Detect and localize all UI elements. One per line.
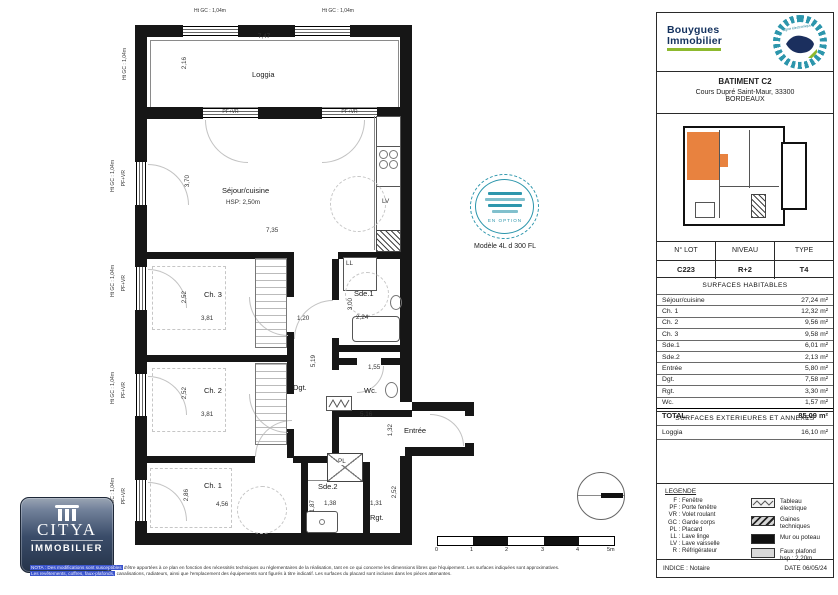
wall: [135, 25, 147, 115]
legend-swatch-row: Mur ou poteau: [751, 534, 829, 544]
furniture: [237, 486, 287, 534]
option-stamp: EN OPTION: [470, 174, 540, 240]
stamp-text: EN OPTION: [470, 218, 540, 223]
room-label-sejour: Séjour/cuisine: [222, 186, 269, 195]
row-label: Sde.2: [662, 354, 680, 361]
partition: [332, 338, 339, 370]
partition: [332, 259, 339, 300]
partition: [339, 345, 412, 352]
table-row: Dgt.7,58 m²: [657, 374, 833, 385]
door-arc: [322, 120, 365, 163]
row-value: 9,56 m²: [805, 319, 828, 326]
legend-abbr-row: PL : Placard: [665, 527, 751, 534]
row-value: 12,32 m²: [801, 308, 828, 315]
window-type-label: PF+VR: [121, 488, 127, 504]
row-value: 5,80 m²: [805, 365, 828, 372]
room-label-ch2: Ch. 2: [204, 386, 222, 395]
zigzag-icon: [327, 397, 351, 410]
toilet-sde1: [390, 295, 402, 310]
key-plan-room: [695, 202, 715, 218]
citya-name: CITYA: [37, 521, 97, 538]
scale-tick: 0: [435, 547, 438, 553]
abbr: GC: [665, 520, 677, 527]
wall: [135, 107, 147, 162]
table-row: Sde.16,01 m²: [657, 340, 833, 351]
bed: [150, 468, 232, 528]
abbr-label: Réfrigérateur: [682, 548, 717, 555]
row-label: Ch. 1: [662, 308, 678, 315]
legend-swatch-row: Gaines techniques: [751, 516, 829, 530]
scale-bar: [437, 536, 615, 546]
window: [295, 26, 350, 36]
wall: [135, 416, 147, 480]
key-plan-annex: [781, 142, 807, 210]
stamp-bar: [485, 198, 525, 201]
lot-table: N° LOT NIVEAU TYPE C223 R+2 T4: [657, 241, 833, 277]
window: [136, 162, 146, 205]
label-ll: LL: [346, 260, 353, 267]
scale-segment: [473, 537, 508, 545]
wall: [405, 447, 474, 456]
key-plan-drawing: [683, 126, 785, 226]
room-label-ch1: Ch. 1: [204, 481, 222, 490]
kitchen-appliance: [376, 116, 401, 148]
entry-door-arc: [430, 414, 464, 446]
abbr-label: Lave linge: [682, 534, 709, 541]
window: [136, 480, 146, 521]
dim-entree-width: 5,16: [360, 411, 372, 418]
legend-abbr-row: GC : Garde corps: [665, 520, 751, 527]
room-label-ch3: Ch. 3: [204, 290, 222, 299]
title-block: Bouygues Immobilier signé électroniqueme…: [656, 12, 834, 578]
door-arc: [148, 164, 189, 205]
dining-table: [330, 176, 386, 232]
floor-plan-sheet: Ht GC : 1,04m Ht GC : 1,04m Ht GC : 1,04…: [0, 0, 838, 595]
stamp-bar: [488, 204, 522, 207]
dim-sde1-height: 3,00: [347, 298, 354, 310]
scale-tick: 1: [470, 547, 473, 553]
orientation-compass: [577, 472, 625, 520]
legend-abbr-row: F : Fenêtre: [665, 498, 751, 505]
dim-loggia-width: 7,47: [244, 33, 284, 40]
burner: [379, 160, 388, 169]
surfaces-table: SURFACES HABITABLES Séjour/cuisine27,24 …: [657, 277, 833, 411]
dim-sde1-width: 2,24: [356, 314, 368, 321]
building-address-line2: BORDEAUX: [657, 96, 833, 103]
legend-swatches: Tableau électrique Gaines techniques Mur…: [751, 498, 829, 566]
window-height-label: Ht GC : 1,04m: [170, 8, 250, 14]
exterior-title: SURFACES EXTERIEURES ET ANNEXES: [657, 412, 833, 425]
row-label: Séjour/cuisine: [662, 297, 705, 304]
partition: [363, 462, 370, 533]
label-pl: PL: [338, 458, 346, 465]
signature-stamp: signé électroniquement: [773, 15, 827, 69]
exterior-surfaces: SURFACES EXTERIEURES ET ANNEXES Loggia 1…: [657, 411, 833, 483]
stamp-bar: [488, 192, 522, 195]
abbr-label: Volet roulant: [682, 512, 715, 519]
stamp-bar: [492, 210, 518, 213]
row-label: Loggia: [662, 429, 682, 436]
table-row: Loggia 16,10 m²: [657, 425, 833, 440]
dim-dgt-height: 5,19: [310, 355, 317, 367]
row-label: Wc.: [662, 399, 674, 406]
window: [136, 267, 146, 310]
dim-sejour-height: 3,70: [184, 175, 191, 187]
nota-text: canalisations, radiateurs, ainsi que l'e…: [115, 571, 451, 576]
stamp-caption: Modèle 4L d 300 FL: [460, 243, 550, 250]
label-lv: LV: [382, 198, 389, 205]
surfaces-title: SURFACES HABITABLES: [657, 278, 833, 294]
dim-rgt-height: 2,52: [391, 486, 398, 498]
scale-tick: 4: [576, 547, 579, 553]
dim-ch2-height: 2,52: [181, 387, 188, 399]
nota-highlight: NOTA : Des modifications sont susceptibl…: [30, 565, 123, 570]
dim-ch3-height: 2,52: [181, 291, 188, 303]
wall: [135, 205, 147, 267]
abbr-label: Fenêtre: [682, 498, 703, 505]
row-value: 6,01 m²: [805, 342, 828, 349]
nota-disclaimer: NOTA : Des modifications sont susceptibl…: [30, 565, 640, 577]
electrical-panel-swatch: [751, 498, 775, 508]
building-address-line1: Cours Dupré Saint-Maur, 33300: [657, 89, 833, 96]
nota-text: d'être apportées à ce plan en fonction d…: [123, 565, 560, 570]
partition: [339, 358, 357, 365]
bed: [152, 368, 226, 432]
window-height-label: Ht GC : 1,04m: [110, 372, 116, 404]
brand-underline: [667, 48, 721, 51]
abbr-label: Lave vaisselle: [682, 541, 720, 548]
key-plan-unit-tab: [719, 154, 728, 167]
table-row: Ch. 29,56 m²: [657, 317, 833, 328]
false-ceiling-swatch: [751, 548, 775, 558]
lot-header: TYPE: [775, 242, 833, 260]
technical-shaft: [376, 230, 401, 252]
nota-highlight: Les revêtements, coffres, faux-plafonds,: [30, 571, 115, 576]
technical-ducts-swatch: [751, 516, 775, 526]
burner: [379, 150, 388, 159]
row-label: Ch. 2: [662, 319, 678, 326]
dim-ch1-height: 2,86: [183, 489, 190, 501]
row-value: 27,24 m²: [801, 297, 828, 304]
wall: [135, 533, 412, 545]
lot-header: NIVEAU: [716, 242, 775, 260]
table-row: Ch. 112,32 m²: [657, 305, 833, 316]
row-label: Rgt.: [662, 388, 674, 395]
window-height-label: Ht GC : 1,04m: [110, 160, 116, 192]
legend-title: LEGENDE: [665, 488, 833, 495]
wall: [135, 310, 147, 374]
drain: [319, 519, 325, 525]
building-name: BATIMENT C2: [657, 77, 833, 86]
citya-subtitle: IMMOBILIER: [31, 540, 103, 554]
abbr-label: Garde corps: [682, 520, 715, 527]
abbr: PF: [665, 505, 677, 512]
table-row: Wc.1,57 m²: [657, 397, 833, 408]
window: [183, 26, 238, 36]
lot-header: N° LOT: [657, 242, 716, 260]
brand-section: Bouygues Immobilier signé électroniqueme…: [657, 13, 833, 71]
row-value: 1,57 m²: [805, 399, 828, 406]
dim-entree-height: 1,32: [387, 424, 394, 436]
room-label-sde1: Sde.1: [354, 289, 374, 298]
abbr: F: [665, 498, 677, 505]
room-label-dgt: Dgt.: [293, 383, 307, 392]
date-label: DATE 06/05/24: [784, 565, 827, 572]
burner: [389, 160, 398, 169]
row-value: 16,10 m²: [801, 429, 828, 436]
row-label: Ch. 3: [662, 331, 678, 338]
row-value: 2,13 m²: [805, 354, 828, 361]
dim-sejour-width: 7,35: [266, 227, 278, 234]
abbr: PL: [665, 527, 677, 534]
swatch-label: Mur ou poteau: [780, 534, 820, 541]
key-plan: [657, 113, 833, 241]
building-section: BATIMENT C2 Cours Dupré Saint-Maur, 3330…: [657, 71, 833, 113]
row-label: Entrée: [662, 365, 682, 372]
window-height-label: Ht GC : 1,04m: [110, 265, 116, 297]
brand-name-line1: Bouygues: [667, 25, 722, 36]
window-type-label: PF+VR: [121, 275, 127, 291]
dim-ch3-width: 3,81: [201, 315, 213, 322]
dim-ch1-width: 4,56: [216, 501, 228, 508]
titleblock-footer: INDICE : Notaire DATE 06/05/24: [657, 559, 833, 577]
window-type-label: PF+VR: [121, 170, 127, 186]
indice-label: INDICE : Notaire: [663, 565, 710, 572]
partition: [381, 358, 412, 365]
key-plan-unit-highlight: [687, 132, 719, 180]
dim-sde2-width: 1,38: [324, 500, 336, 507]
swatch-label: Faux plafond: [780, 548, 816, 555]
legend-abbr-row: LV : Lave vaisselle: [665, 541, 751, 548]
scale-segment: [544, 537, 579, 545]
key-plan-line: [719, 186, 779, 187]
compass-needle: [601, 493, 623, 498]
table-row: Ch. 39,58 m²: [657, 328, 833, 339]
swatch-label: Tableau électrique: [780, 498, 829, 512]
abbr: LV: [665, 541, 677, 548]
legend-abbreviations: F : Fenêtre PF : Porte fenêtre VR : Vole…: [665, 498, 751, 566]
window-type-label: PF+VR: [322, 109, 377, 115]
dim-ch2-width: 3,81: [201, 411, 213, 418]
key-plan-shaft: [751, 194, 766, 218]
legend-abbr-row: R : Réfrigérateur: [665, 548, 751, 555]
electrical-panel: [326, 396, 352, 411]
legend-abbr-row: VR : Volet roulant: [665, 512, 751, 519]
abbr-label: Placard: [682, 527, 702, 534]
room-label-wc: Wc.: [364, 386, 377, 395]
brand-name-line2: Immobilier: [667, 36, 722, 47]
wall: [400, 456, 412, 545]
room-label-rgt: Rgt.: [370, 513, 384, 522]
abbr: LL: [665, 534, 677, 541]
wall-swatch: [751, 534, 775, 544]
row-value: 9,58 m²: [805, 331, 828, 338]
legend-abbr-row: PF : Porte fenêtre: [665, 505, 751, 512]
table-row: Entrée5,80 m²: [657, 362, 833, 373]
table-row: Séjour/cuisine27,24 m²: [657, 294, 833, 305]
partition: [287, 252, 294, 297]
table-row: Rgt.3,30 m²: [657, 385, 833, 396]
wall: [465, 402, 474, 416]
dim-wc-width: 1,55: [368, 364, 380, 371]
window: [136, 374, 146, 416]
window-height-label: Ht GC : 1,04m: [298, 8, 378, 14]
room-label-sde2: Sde.2: [318, 482, 338, 491]
dim-sde2-height: 1,87: [309, 500, 316, 512]
wardrobe: [255, 363, 287, 445]
key-plan-line: [749, 130, 750, 188]
room-label-loggia: Loggia: [252, 70, 275, 79]
row-label: Sde.1: [662, 342, 680, 349]
window-height-label: Ht GC : 1,04m: [122, 48, 128, 80]
abbr-label: Porte fenêtre: [682, 505, 717, 512]
burner: [389, 150, 398, 159]
key-plan-line: [719, 130, 720, 218]
wall: [258, 107, 322, 119]
legend-abbr-row: LL : Lave linge: [665, 534, 751, 541]
wall: [400, 25, 412, 115]
scale-tick: 3: [541, 547, 544, 553]
citya-logo: CITYA IMMOBILIER: [20, 497, 114, 573]
wardrobe: [255, 258, 287, 348]
dim-sejour-hsp: HSP: 2,50m: [226, 199, 260, 206]
abbr: R: [665, 548, 677, 555]
dim-loggia-height: 2,16: [181, 57, 188, 69]
room-label-entree: Entrée: [404, 426, 426, 435]
window-type-label: PF+VR: [203, 109, 258, 115]
stamp-triangle: [808, 49, 817, 58]
window-type-label: PF+VR: [121, 382, 127, 398]
row-value: 7,58 m²: [805, 376, 828, 383]
scale-tick: 5m: [607, 547, 615, 553]
row-value: 3,30 m²: [805, 388, 828, 395]
abbr: VR: [665, 512, 677, 519]
partition: [147, 355, 287, 362]
dim-rgt-width: 1,31: [370, 500, 382, 507]
table-row: Sde.22,13 m²: [657, 351, 833, 362]
signature-stamp-center: signé électroniquement: [780, 22, 820, 62]
dim-hall-width: 1,20: [297, 315, 309, 322]
row-label: Dgt.: [662, 376, 674, 383]
column-icon: [54, 505, 80, 521]
door-arc: [205, 120, 248, 163]
legend: LEGENDE F : Fenêtre PF : Porte fenêtre V…: [657, 483, 833, 559]
scale-tick: 2: [505, 547, 508, 553]
nota-line2: Les revêtements, coffres, faux-plafonds,…: [30, 571, 640, 577]
swatch-label: Gaines techniques: [780, 516, 829, 530]
toilet-wc: [385, 382, 398, 398]
partition: [147, 456, 255, 463]
legend-swatch-row: Tableau électrique: [751, 498, 829, 512]
